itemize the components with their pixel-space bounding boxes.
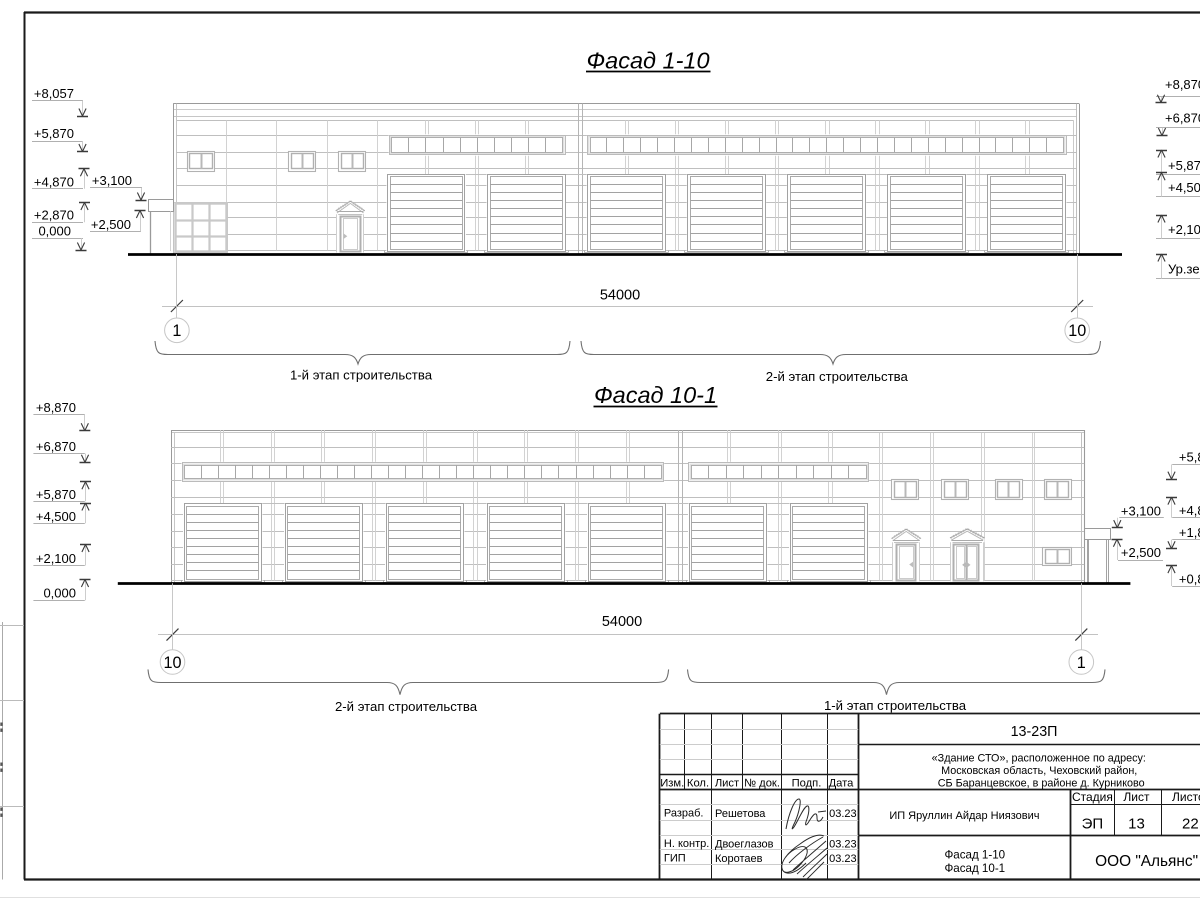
svg-text:+5,870: +5,870 bbox=[1179, 449, 1200, 464]
svg-text:Фасад 1-10: Фасад 1-10 bbox=[586, 47, 709, 73]
svg-text:Лист: Лист bbox=[1123, 790, 1150, 804]
svg-text:03.23: 03.23 bbox=[829, 808, 857, 820]
svg-text:1-й этап строительства: 1-й этап строительства bbox=[824, 698, 967, 713]
svg-text:ИП Яруллин Айдар Ниязович: ИП Яруллин Айдар Ниязович bbox=[889, 810, 1039, 822]
svg-text:+2,500: +2,500 bbox=[91, 217, 131, 232]
svg-text:03.23: 03.23 bbox=[829, 838, 857, 850]
svg-text:+2,100: +2,100 bbox=[36, 551, 76, 566]
svg-text:+6,870: +6,870 bbox=[1165, 111, 1200, 126]
svg-text:+0,800: +0,800 bbox=[1179, 571, 1200, 586]
svg-text:Лист: Лист bbox=[715, 777, 739, 789]
svg-text:СБ Баранцевское, в районе д. К: СБ Баранцевское, в районе д. Курниково bbox=[938, 778, 1145, 790]
svg-text:Кол.: Кол. bbox=[687, 777, 709, 789]
svg-text:+3,100: +3,100 bbox=[1121, 504, 1161, 519]
svg-text:13-23П: 13-23П bbox=[1011, 724, 1058, 740]
svg-text:+8,870: +8,870 bbox=[36, 400, 76, 415]
svg-text:Фасад 1-10: Фасад 1-10 bbox=[944, 849, 1005, 862]
svg-text:Московская область, Чеховский: Московская область, Чеховский район, bbox=[941, 765, 1137, 777]
svg-text:Листов: Листов bbox=[1172, 790, 1200, 804]
svg-text:Фасад 10-1: Фасад 10-1 bbox=[944, 862, 1005, 875]
svg-text:1-й этап строительства: 1-й этап строительства bbox=[290, 368, 433, 383]
svg-text:+4,500: +4,500 bbox=[1168, 180, 1200, 195]
svg-text:Изм.: Изм. bbox=[660, 777, 684, 789]
svg-text:+8,057: +8,057 bbox=[34, 86, 74, 101]
svg-text:+3,100: +3,100 bbox=[92, 173, 132, 188]
svg-text:ГИП: ГИП bbox=[664, 853, 686, 865]
svg-text:Коротаев: Коротаев bbox=[715, 853, 763, 865]
svg-text:+2,100: +2,100 bbox=[1168, 222, 1200, 237]
svg-text:22: 22 bbox=[1182, 815, 1199, 832]
svg-text:Подп.: Подп. bbox=[792, 777, 822, 789]
svg-text:+2,500: +2,500 bbox=[1121, 545, 1161, 560]
svg-text:+5,870: +5,870 bbox=[1168, 158, 1200, 173]
svg-text:+1,850: +1,850 bbox=[1179, 525, 1200, 540]
svg-text:№ док.: № док. bbox=[744, 777, 780, 789]
svg-text:0,000: 0,000 bbox=[43, 586, 76, 601]
svg-text:+4,870: +4,870 bbox=[1179, 503, 1200, 518]
svg-text:+4,870: +4,870 bbox=[34, 174, 74, 189]
svg-text:Разраб.: Разраб. bbox=[664, 807, 704, 819]
svg-text:2-й этап строительства: 2-й этап строительства bbox=[766, 369, 909, 384]
svg-text:Решетова: Решетова bbox=[715, 808, 766, 820]
svg-text:+8,870: +8,870 bbox=[1165, 77, 1200, 92]
svg-text:10: 10 bbox=[163, 654, 181, 672]
svg-text:Н. контр.: Н. контр. bbox=[664, 838, 709, 850]
svg-text:Стадия: Стадия bbox=[1072, 790, 1113, 804]
svg-text:10: 10 bbox=[1068, 322, 1086, 340]
svg-text:1: 1 bbox=[1077, 654, 1086, 672]
svg-text:Ур.земли: Ур.земли bbox=[1168, 262, 1200, 277]
svg-text:0,000: 0,000 bbox=[38, 223, 71, 238]
svg-text:03.23: 03.23 bbox=[829, 853, 857, 865]
svg-text:Фасад 10-1: Фасад 10-1 bbox=[594, 382, 717, 408]
svg-text:+5,870: +5,870 bbox=[34, 126, 74, 141]
svg-text:ЭП: ЭП bbox=[1082, 815, 1104, 832]
svg-text:13: 13 bbox=[1128, 815, 1145, 832]
svg-text:2-й этап строительства: 2-й этап строительства bbox=[335, 699, 478, 714]
svg-text:+4,500: +4,500 bbox=[36, 509, 76, 524]
svg-text:ООО "Альянс": ООО "Альянс" bbox=[1095, 853, 1198, 870]
svg-text:«Здание СТО», расположенное по: «Здание СТО», расположенное по адресу: bbox=[932, 753, 1146, 765]
svg-text:+6,870: +6,870 bbox=[36, 439, 76, 454]
svg-text:Дата: Дата bbox=[829, 777, 855, 789]
svg-text:54000: 54000 bbox=[600, 288, 640, 304]
svg-text:1: 1 bbox=[172, 322, 181, 340]
svg-text:Двоеглазов: Двоеглазов bbox=[715, 838, 774, 850]
svg-text:+2,870: +2,870 bbox=[34, 208, 74, 223]
svg-text:54000: 54000 bbox=[602, 614, 642, 630]
svg-text:+5,870: +5,870 bbox=[36, 487, 76, 502]
